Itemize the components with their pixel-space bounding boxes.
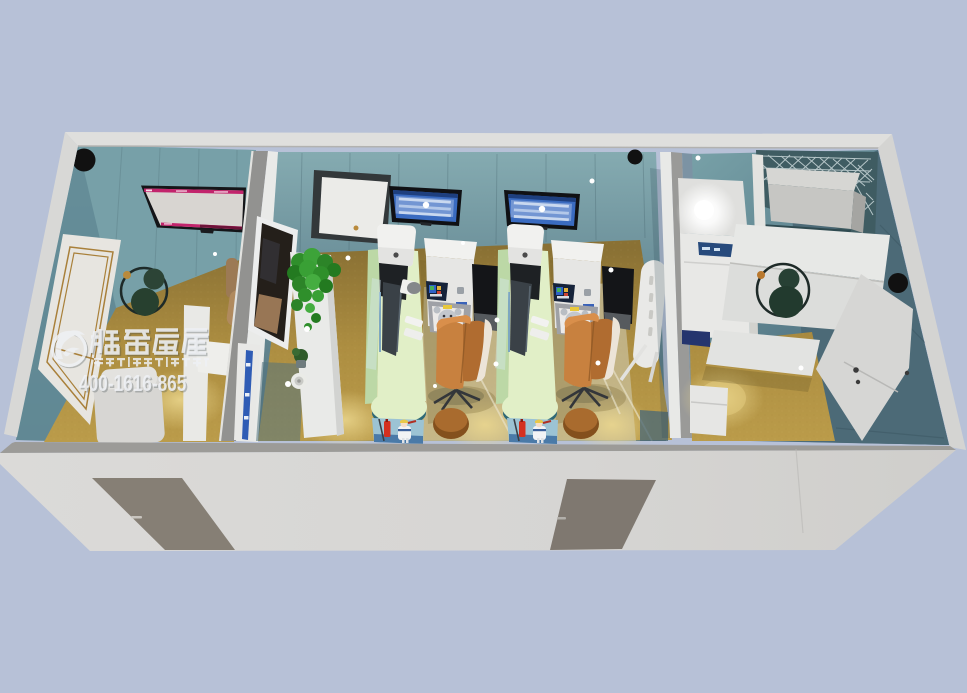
- svg-text:400-1616-865: 400-1616-865: [79, 372, 186, 397]
